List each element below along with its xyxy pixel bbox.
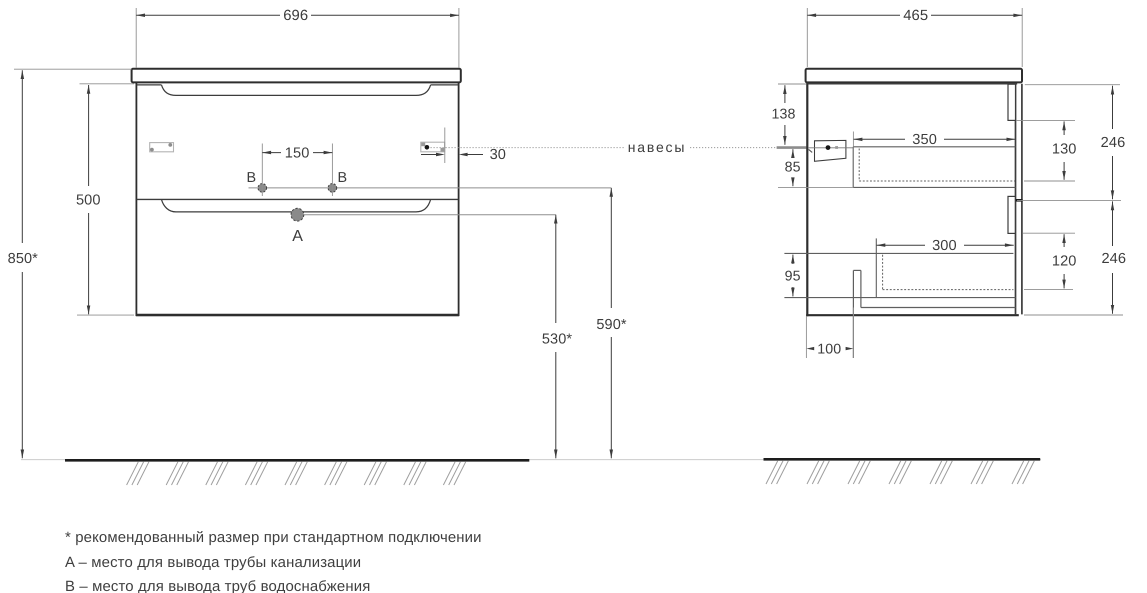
svg-text:246: 246 <box>1101 251 1126 267</box>
svg-text:465: 465 <box>903 8 928 24</box>
svg-text:B: B <box>246 170 256 186</box>
svg-text:850*: 850* <box>8 251 38 267</box>
svg-text:246: 246 <box>1101 135 1126 151</box>
svg-text:100: 100 <box>817 341 841 357</box>
svg-text:85: 85 <box>785 159 801 175</box>
svg-text:A: A <box>292 228 303 245</box>
svg-text:95: 95 <box>785 269 801 285</box>
svg-text:* рекомендованный размер при с: * рекомендованный размер при стандартном… <box>65 530 482 546</box>
svg-text:130: 130 <box>1052 141 1077 157</box>
svg-text:120: 120 <box>1052 254 1077 270</box>
svg-text:150: 150 <box>285 145 310 161</box>
svg-text:138: 138 <box>772 107 796 123</box>
svg-text:навесы: навесы <box>628 139 686 155</box>
svg-text:696: 696 <box>283 8 308 24</box>
svg-text:B: B <box>337 170 347 186</box>
svg-text:530*: 530* <box>542 332 572 348</box>
svg-text:350: 350 <box>912 132 937 148</box>
svg-text:500: 500 <box>76 192 101 208</box>
svg-text:590*: 590* <box>596 317 626 333</box>
svg-text:B – место для вывода труб водо: B – место для вывода труб водоснабжения <box>65 579 370 593</box>
svg-text:A – место для вывода трубы кан: A – место для вывода трубы канализации <box>65 555 361 571</box>
svg-text:30: 30 <box>490 147 506 163</box>
svg-text:300: 300 <box>932 238 957 254</box>
